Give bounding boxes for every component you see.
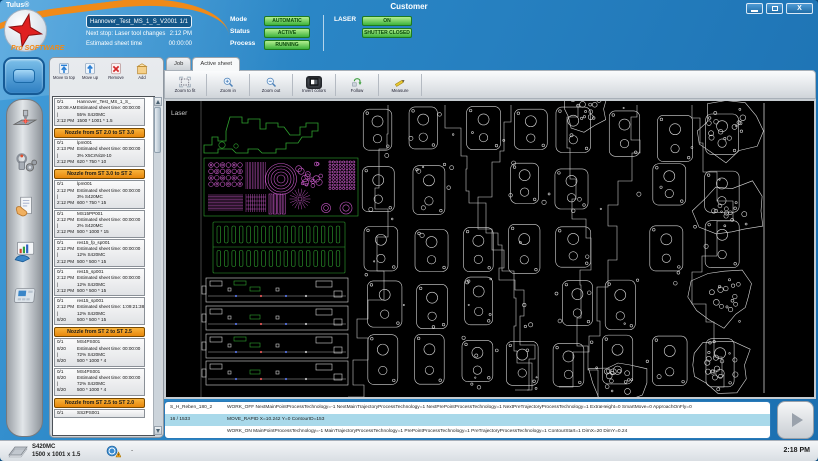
sidebar-item-laser-tool[interactable]: [12, 106, 38, 132]
connection-warning-icon[interactable]: [106, 445, 121, 458]
process-badge: RUNNING: [264, 40, 310, 50]
tab-active-sheet[interactable]: Active sheet: [192, 57, 240, 71]
status-bar: S420MC 1500 x 1001 x 1.5 - 2:18 PM: [0, 440, 818, 461]
zoom-to-fit-button[interactable]: Zoom to fit: [167, 76, 203, 94]
job-list-item[interactable]: 0/1res15_sp0012:12 PMEstimated sheet tim…: [54, 297, 145, 325]
canvas-laser-label: Laser: [171, 110, 188, 117]
job-list-item[interactable]: 0/1MS4PS0018/20Estimated sheet time: 00:…: [54, 368, 145, 396]
remove-icon: [109, 62, 123, 76]
view-tabs: JobActive sheet: [166, 57, 240, 71]
job-list-item[interactable]: 0/1MS4PS0018/20Estimated sheet time: 00:…: [54, 338, 145, 366]
laser-state-badge: ON: [362, 16, 412, 26]
sheet-canvas[interactable]: Laser: [164, 99, 816, 399]
maximize-button[interactable]: [766, 3, 783, 14]
reports-icon: [12, 251, 38, 268]
est-sheet-time-value: 00:00:00: [169, 41, 192, 47]
maximize-icon: [772, 6, 778, 11]
zoom-in-button[interactable]: Zoom in: [210, 76, 246, 94]
program-field[interactable]: Hannover_Test_MS_1_S_V2001 1/1: [86, 15, 192, 28]
job-list-scrollbar[interactable]: [153, 97, 161, 435]
status-label: Status: [230, 28, 250, 35]
sidebar-item-reports[interactable]: [12, 238, 38, 264]
shutter-state-badge: SHUTTER CLOSED: [362, 28, 412, 38]
move-to-top-icon: [57, 62, 71, 76]
est-time-row: Estimated sheet time 00:00:00: [86, 41, 192, 47]
measure-button[interactable]: Measure: [382, 76, 418, 94]
move-up-button[interactable]: Move up: [77, 59, 103, 95]
zoom-to-fit-icon: [177, 76, 193, 89]
scroll-up-arrow-icon[interactable]: [154, 97, 162, 106]
scroll-down-arrow-icon[interactable]: [154, 426, 162, 435]
brand-text: Pro SOFTWARE: [11, 45, 64, 52]
header-divider: [323, 15, 324, 51]
job-documents-icon: [12, 207, 38, 224]
follow-button[interactable]: Follow: [339, 76, 375, 94]
nesting-drawing: Laser: [166, 101, 814, 397]
minimize-button[interactable]: [746, 3, 763, 14]
job-section-header: Nozzle from ST 2 to ST 2.5: [54, 327, 145, 337]
machine-home-icon: [13, 69, 35, 83]
zoom-in-icon: [220, 76, 236, 89]
zoom-out-icon: [263, 76, 279, 89]
job-section-header: Nozzle from ST 3.0 to ST 2: [54, 169, 145, 179]
est-sheet-time-label: Estimated sheet time: [86, 41, 142, 47]
laser-label: LASER: [334, 16, 356, 23]
job-list-item[interactable]: 0/1res15_sp0012:12 PMEstimated sheet tim…: [54, 268, 145, 296]
sidebar-item-control-panel[interactable]: [12, 282, 38, 308]
move-up-icon: [83, 62, 97, 76]
sidebar-item-job-documents[interactable]: [12, 194, 38, 220]
job-toolbar: Move to topMove upRemoveAdd: [51, 59, 155, 95]
control-panel-icon: [12, 295, 38, 312]
add-icon: [135, 62, 149, 76]
nc-line[interactable]: WORK_ON MainPointProcessTechnology=-1 Ma…: [165, 426, 770, 438]
next-stop-label: Next stop: Laser tool changes: [86, 31, 165, 37]
measure-icon: [392, 76, 408, 89]
job-list-item[interactable]: 0/1lpm0012:12 PMEstimated sheet time: 00…: [54, 180, 145, 208]
zoom-out-button[interactable]: Zoom out: [253, 76, 289, 94]
job-list-item[interactable]: 0/1res15_fp_sp0012:12 PMEstimated sheet …: [54, 239, 145, 267]
nc-code-panel: S_H_Reben_180_2WORK_OFF NextMainPointPro…: [164, 401, 771, 439]
tab-job[interactable]: Job: [166, 57, 191, 70]
sheet-info: S420MC 1500 x 1001 x 1.5: [32, 444, 80, 459]
job-queue-panel: Move to topMove upRemoveAdd 0/1Hannover_…: [49, 57, 164, 438]
job-list-item[interactable]: 0/1lpm0012:13 PMEstimated sheet time: 00…: [54, 139, 145, 167]
close-button[interactable]: X: [786, 3, 813, 14]
next-stop-value: 2:12 PM: [170, 31, 192, 37]
minimize-icon: [751, 10, 758, 12]
nc-line[interactable]: S_H_Reben_180_2WORK_OFF NextMainPointPro…: [165, 402, 770, 414]
move-to-top-button[interactable]: Move to top: [51, 59, 77, 95]
sidebar-item-tool-setup[interactable]: [12, 150, 38, 176]
program-name: Hannover_Test_MS_1_S_V2001: [90, 19, 177, 25]
sheet-size: 1500 x 1001 x 1.5: [32, 452, 80, 460]
invert-colors-icon: [306, 76, 322, 89]
window-title: Customer: [0, 2, 818, 11]
job-section-header: Nozzle from ST 2.0 to ST 3.0: [54, 128, 145, 138]
follow-icon: [349, 76, 365, 89]
sidebar-item-machine[interactable]: [3, 57, 45, 95]
add-button[interactable]: Add: [129, 59, 155, 95]
status-separator: -: [131, 447, 133, 454]
mode-badge: AUTOMATIC: [264, 16, 310, 26]
sheet-icon: [8, 444, 28, 458]
program-count: 1/1: [180, 19, 188, 25]
process-label: Process: [230, 40, 255, 47]
laser-tool-icon: [12, 119, 38, 136]
window-buttons: X: [746, 3, 813, 14]
next-stop-row: Next stop: Laser tool changes 2:12 PM: [86, 31, 192, 37]
job-list-item[interactable]: 0/1Hannover_Test_MS_1_S_10:08 AMEstimate…: [54, 98, 145, 126]
mode-label: Mode: [230, 16, 247, 23]
tool-setup-icon: [12, 163, 38, 180]
job-list: 0/1Hannover_Test_MS_1_S_10:08 AMEstimate…: [52, 96, 155, 436]
sheet-material: S420MC: [32, 444, 80, 452]
canvas-toolbar: Zoom to fitZoom inZoom outInvert colorsF…: [164, 70, 816, 99]
job-list-item[interactable]: 0/1SS2PS001: [54, 409, 145, 418]
nc-play-button[interactable]: [777, 401, 814, 439]
remove-button[interactable]: Remove: [103, 59, 129, 95]
clock: 2:18 PM: [784, 447, 810, 454]
job-list-item[interactable]: 0/1MS15PP0012:12 PMEstimated sheet time:…: [54, 210, 145, 238]
invert-colors-button[interactable]: Invert colors: [296, 76, 332, 94]
job-section-header: Nozzle from ST 2.5 to ST 2.0: [54, 398, 145, 408]
sidebar: [6, 99, 43, 437]
scrollbar-thumb[interactable]: [154, 107, 161, 153]
close-icon: X: [797, 5, 802, 12]
status-badge: ACTIVE: [264, 28, 310, 38]
nc-line[interactable]: 16 / 1533MOVE_RAPID X=10.242 Y=0 Contour…: [165, 414, 770, 426]
play-icon: [792, 413, 803, 427]
app-window: Tulus® Customer X Pro SOFTWARE Hannover_…: [0, 0, 818, 461]
